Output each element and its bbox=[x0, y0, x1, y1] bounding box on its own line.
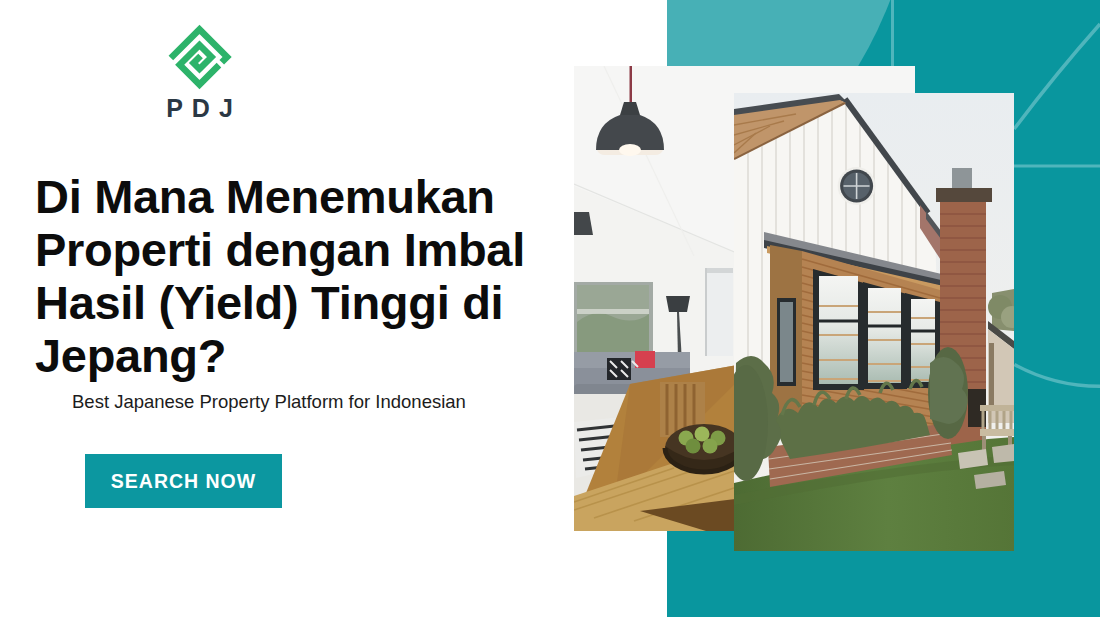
svg-text:PDJ: PDJ bbox=[166, 94, 242, 122]
